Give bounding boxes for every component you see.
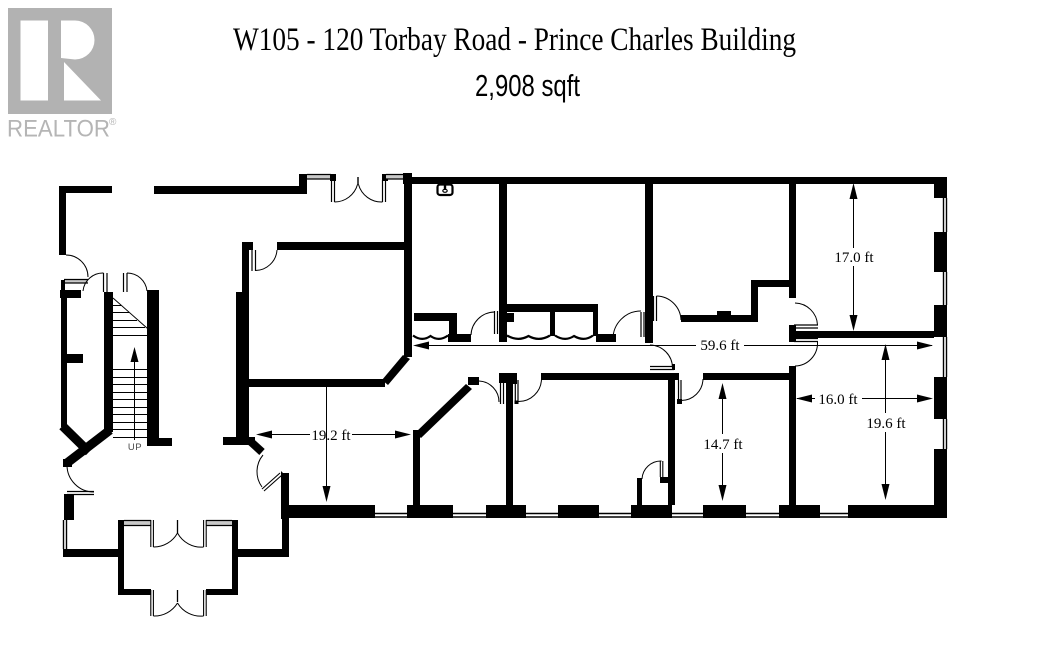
svg-text:17.0 ft: 17.0 ft: [834, 250, 874, 266]
svg-text:W105 - 120 Torbay Road - Princ: W105 - 120 Torbay Road - Prince Charles …: [233, 22, 796, 58]
svg-text:19.2 ft: 19.2 ft: [311, 428, 351, 444]
svg-text:®: ®: [109, 117, 117, 128]
svg-text:14.7 ft: 14.7 ft: [703, 437, 743, 453]
svg-text:REALTOR: REALTOR: [7, 116, 110, 143]
svg-text:2,908 sqft: 2,908 sqft: [475, 68, 580, 103]
svg-text:59.6 ft: 59.6 ft: [700, 338, 740, 354]
svg-text:16.0 ft: 16.0 ft: [818, 392, 858, 408]
svg-text:19.6 ft: 19.6 ft: [866, 416, 906, 432]
svg-text:UP: UP: [128, 442, 142, 453]
